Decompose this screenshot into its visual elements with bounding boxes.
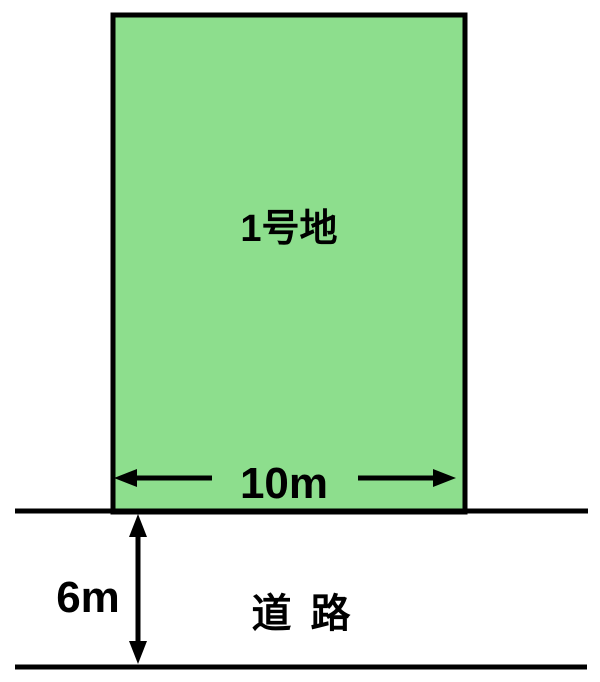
diagram-canvas: 1号地 10m 6m 道 路: [0, 0, 600, 682]
road-width-arrow-bottom-head-icon: [129, 641, 147, 664]
frontage-dimension-label: 10m: [240, 459, 328, 508]
lot-label: 1号地: [240, 208, 337, 250]
lot-area-rect: [113, 15, 465, 512]
road-width-arrow-top-head-icon: [129, 514, 147, 537]
road-width-arrow: [129, 514, 147, 664]
road-width-dimension-label: 6m: [56, 573, 120, 622]
road-label: 道 路: [251, 592, 354, 636]
land-plot-diagram: 1号地 10m 6m 道 路: [0, 0, 600, 682]
